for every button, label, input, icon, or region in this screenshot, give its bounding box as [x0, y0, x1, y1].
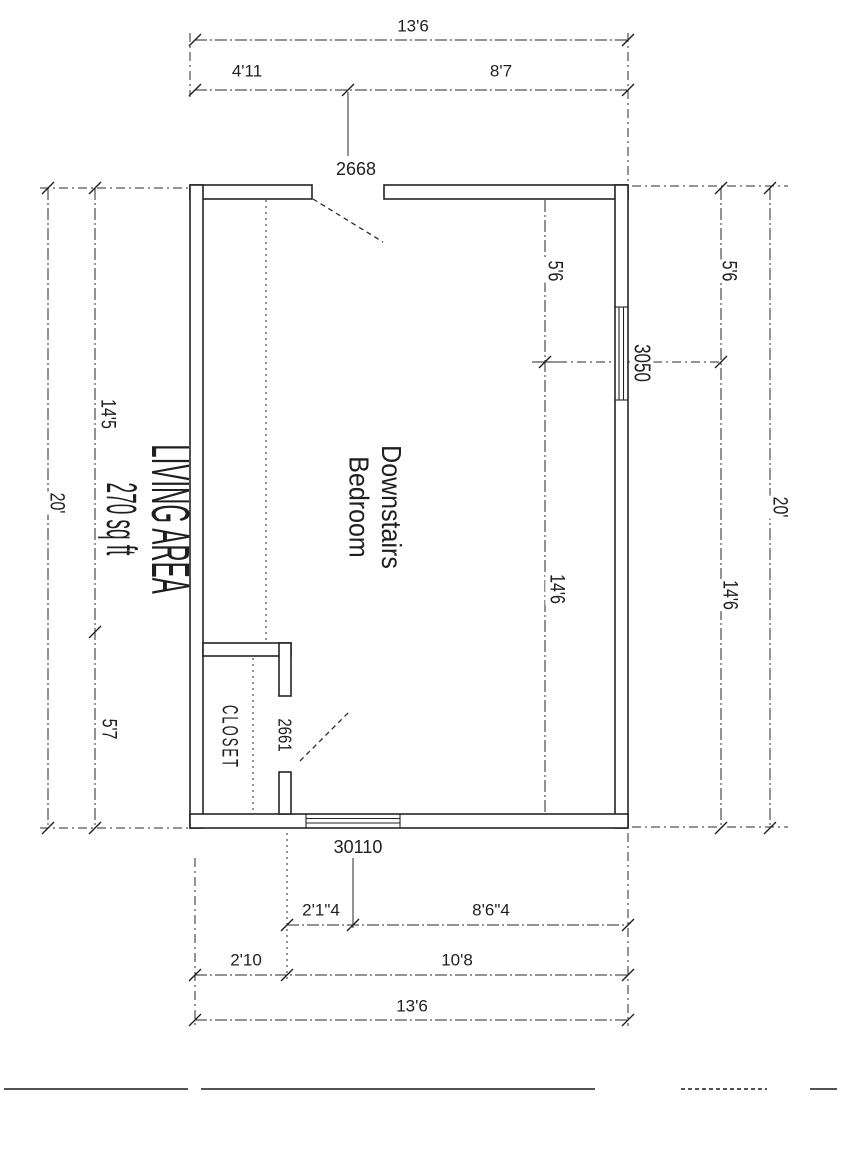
dim-left-upper-segment: 14'5: [96, 398, 118, 430]
dim-right-inner-lower: 14'6: [545, 573, 567, 605]
closet-door-swing: [300, 712, 349, 761]
living-area-label: LIVING AREA 270 sq ft: [93, 444, 194, 593]
dim-left-overall: 20': [45, 492, 67, 515]
bedroom-label: Downstairs Bedroom: [342, 445, 407, 569]
dim-bottom-overall: 13'6: [395, 998, 429, 1015]
entry-door-swing: [313, 199, 383, 242]
dim-right-inner-upper: 5'6: [543, 260, 565, 283]
dim-right-outer-lower: 14'6: [718, 579, 740, 611]
dim-right-overall: 20': [768, 496, 790, 519]
interior-reference-lines: [253, 200, 287, 980]
closet-door-code-label: 2661: [275, 717, 294, 752]
entry-door-code-label: 2668: [335, 160, 377, 178]
dim-top-right-segment: 8'7: [489, 63, 513, 80]
dim-top-overall: 13'6: [396, 18, 430, 35]
floor-plan-page: LIVING AREA 270 sq ft Downstairs Bedroom…: [0, 0, 841, 1154]
living-area-name: LIVING AREA: [141, 444, 195, 593]
right-window-code-label: 3050: [631, 343, 654, 383]
closet-label: CLOSET: [217, 705, 243, 769]
dim-bottom-window-left: 2'1"4: [301, 902, 341, 919]
dim-bottom-right-segment: 10'8: [440, 952, 474, 969]
bottom-window-code-label: 30110: [333, 838, 384, 856]
dim-bottom-left-segment: 2'10: [229, 952, 263, 969]
dim-bottom-window-right: 8'6"4: [471, 902, 511, 919]
living-area-sqft: 270 sq ft: [93, 444, 140, 593]
dim-top-left-segment: 4'11: [231, 63, 263, 80]
bedroom-name-line2: Bedroom: [342, 445, 374, 569]
dim-left-lower-segment: 5'7: [97, 718, 119, 741]
bedroom-name-line1: Downstairs: [374, 445, 406, 569]
dim-right-outer-upper: 5'6: [717, 260, 739, 283]
